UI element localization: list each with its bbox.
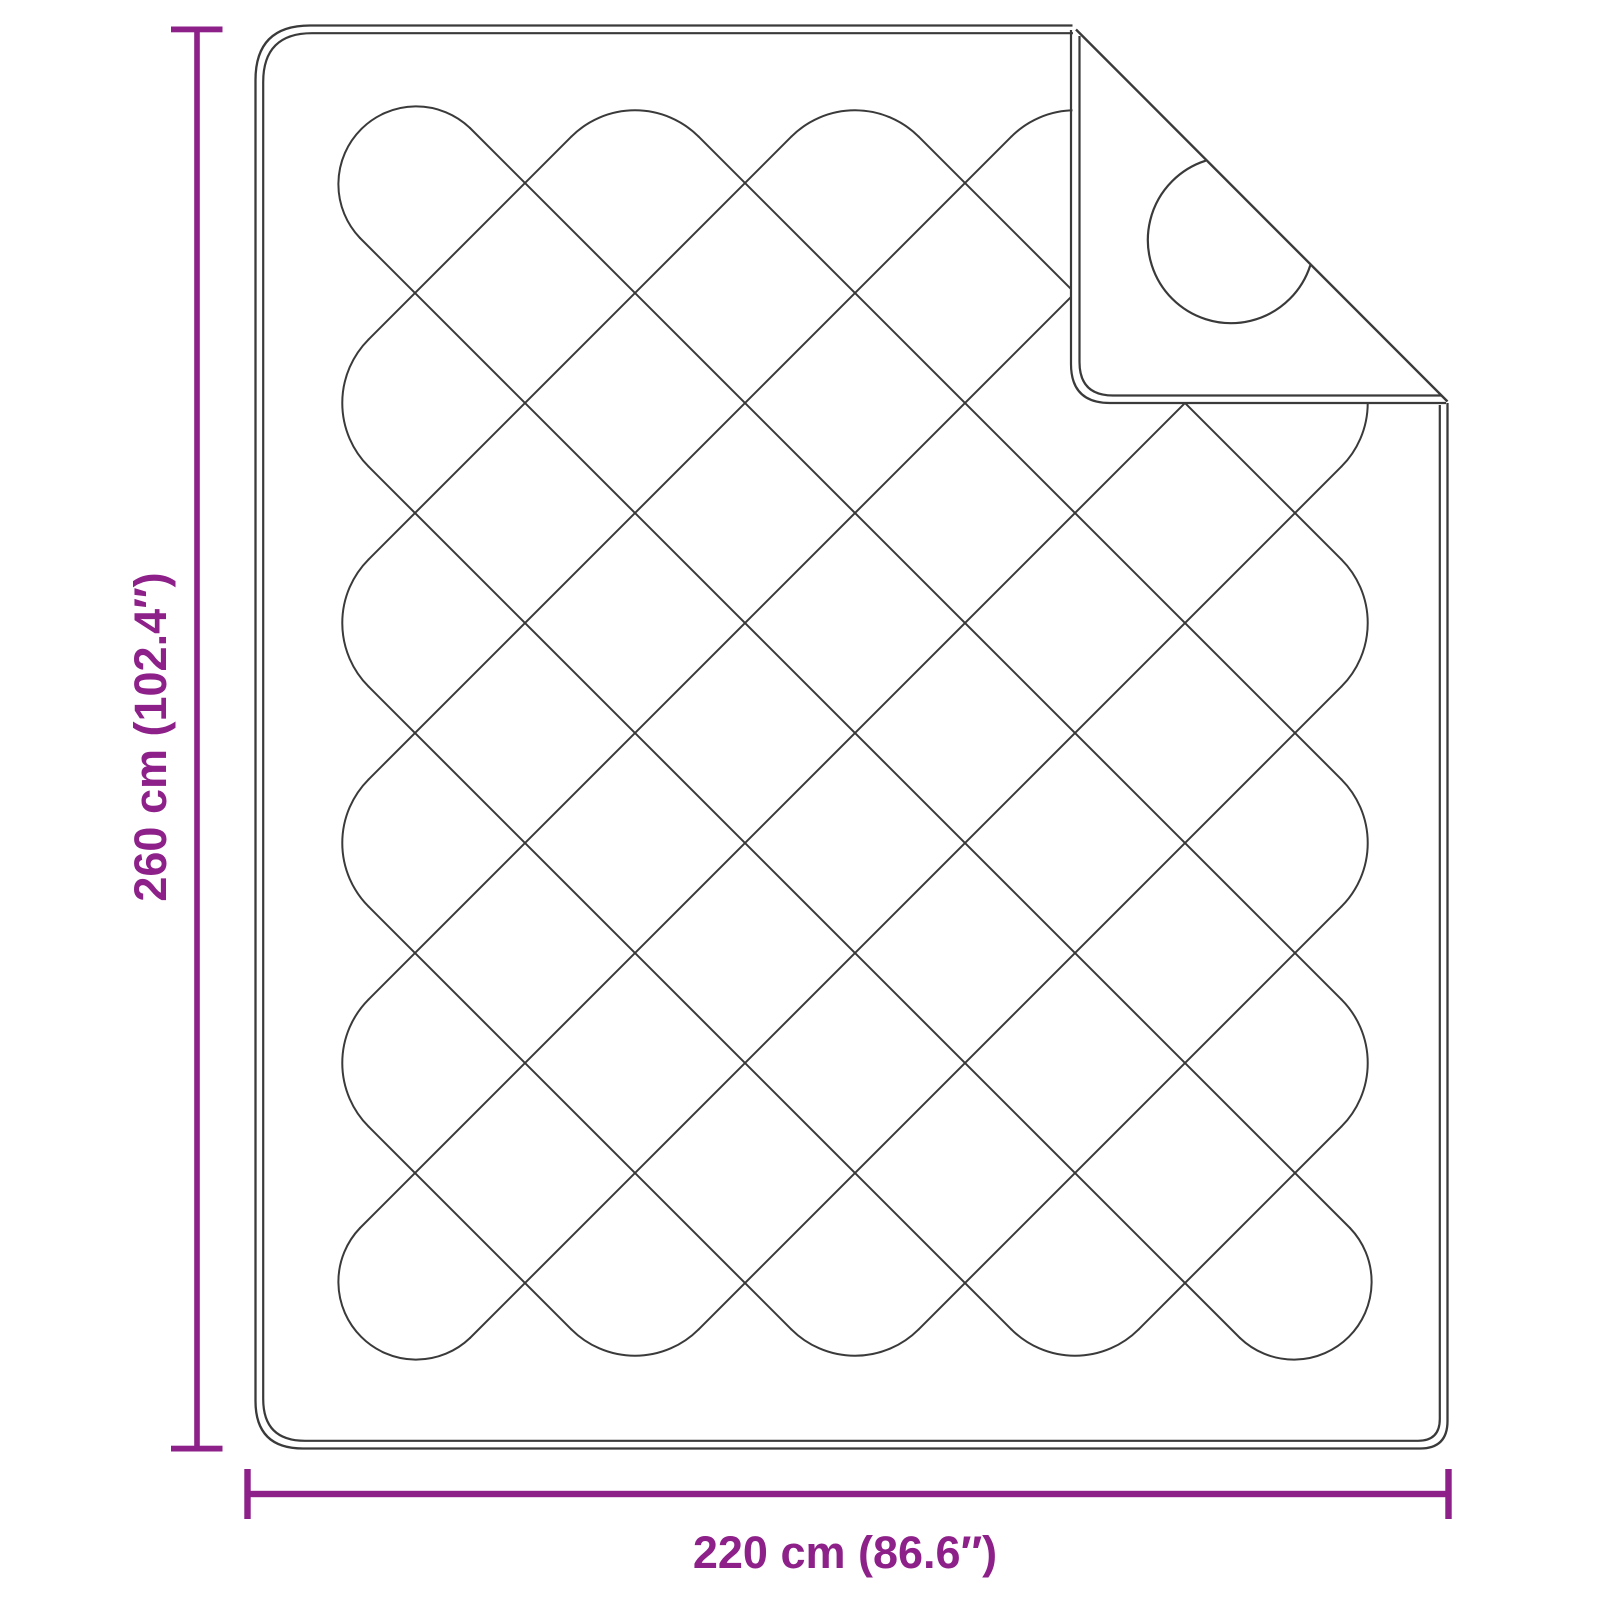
svg-text:220 cm (86.6″): 220 cm (86.6″) [693, 1527, 997, 1578]
svg-text:260 cm (102.4″): 260 cm (102.4″) [125, 572, 176, 901]
